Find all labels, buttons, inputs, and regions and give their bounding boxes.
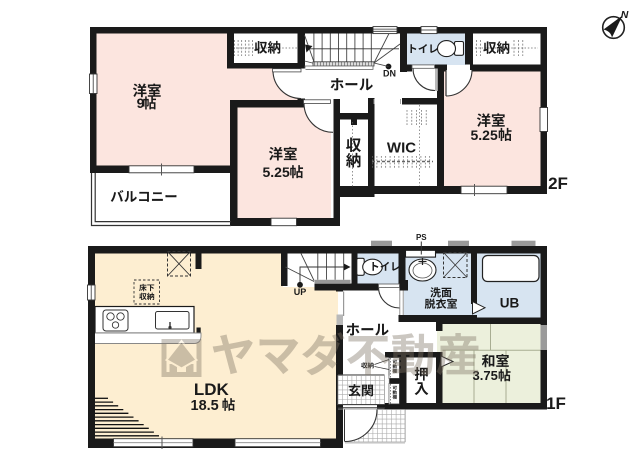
svg-text:PS: PS bbox=[416, 233, 427, 242]
svg-text:WIC: WIC bbox=[387, 140, 416, 157]
svg-text:1F: 1F bbox=[546, 394, 566, 413]
svg-text:DN: DN bbox=[383, 69, 396, 79]
svg-text:18.5: 18.5 bbox=[191, 398, 219, 414]
svg-text:UB: UB bbox=[500, 295, 520, 310]
svg-text:2F: 2F bbox=[548, 174, 568, 193]
svg-text:UP: UP bbox=[294, 287, 307, 297]
svg-text:LDK: LDK bbox=[194, 380, 230, 399]
svg-text:N: N bbox=[621, 9, 629, 21]
svg-text:5.25: 5.25 bbox=[263, 164, 290, 180]
svg-text:5.25: 5.25 bbox=[471, 127, 498, 143]
